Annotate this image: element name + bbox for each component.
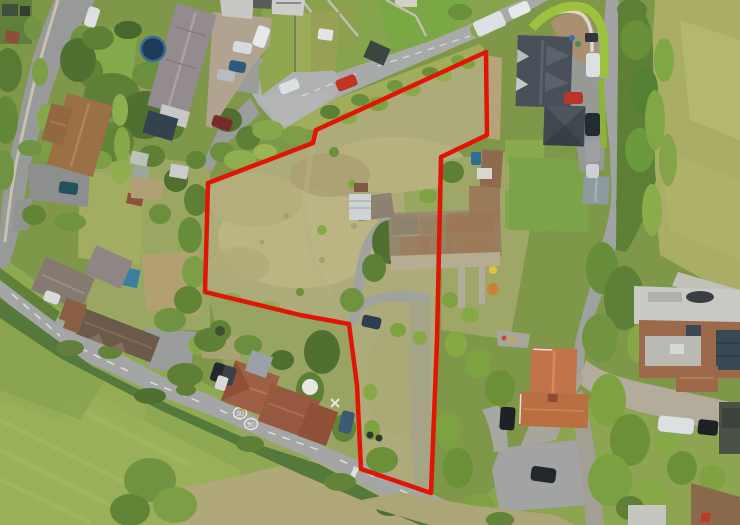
svg-text:30: 30 — [236, 411, 244, 418]
svg-text:30: 30 — [247, 422, 255, 429]
